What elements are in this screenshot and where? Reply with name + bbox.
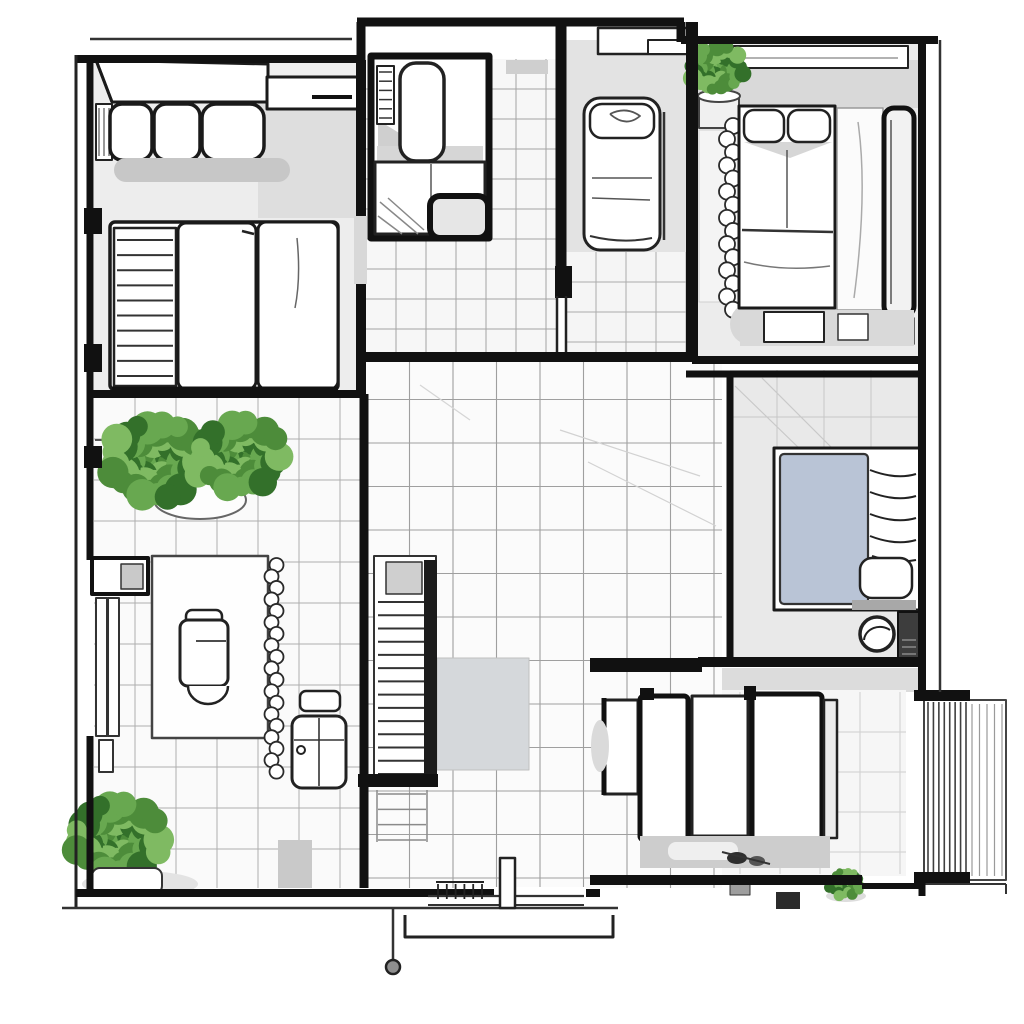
sofa-cushion-3 bbox=[202, 104, 264, 160]
staircase-base bbox=[358, 774, 438, 787]
room6-shadow-band bbox=[700, 668, 918, 692]
porch-outline bbox=[405, 915, 613, 937]
bed2-bench bbox=[430, 196, 488, 238]
gray-box bbox=[278, 840, 312, 888]
small-item bbox=[730, 884, 750, 895]
sofa-cushion-1 bbox=[110, 104, 152, 160]
floorplan-svg bbox=[0, 0, 1024, 1024]
wall-room6-left-cap bbox=[590, 658, 702, 672]
room1-shadow bbox=[258, 92, 357, 218]
room4-bench-table bbox=[764, 312, 824, 342]
sofa2-panel-right bbox=[752, 694, 822, 840]
bed2-pillow bbox=[400, 63, 444, 161]
doormat-dark bbox=[776, 892, 800, 909]
sofa2-hinge-1 bbox=[640, 688, 654, 700]
window-frame-left-a bbox=[96, 598, 107, 736]
side-table bbox=[604, 700, 638, 794]
hall-mat bbox=[437, 658, 529, 770]
door-room1 bbox=[354, 216, 367, 284]
wardrobe bbox=[884, 108, 914, 316]
window-frame-left-b bbox=[108, 598, 119, 736]
sofa-cushion-2 bbox=[154, 104, 200, 160]
sofa-shadow bbox=[114, 158, 290, 182]
bed1-runner bbox=[114, 228, 176, 386]
bed5-pillow bbox=[860, 558, 912, 598]
side-table-shadow bbox=[591, 720, 609, 772]
bed5-under-shadow bbox=[852, 600, 916, 610]
bed2-striped-pillow bbox=[377, 66, 394, 124]
console-table bbox=[267, 77, 360, 109]
room4-window bbox=[733, 46, 908, 68]
pin-head bbox=[386, 960, 400, 974]
room4-bench-box bbox=[838, 314, 868, 340]
armchair-ottoman bbox=[300, 691, 340, 711]
staircase-stringer bbox=[424, 560, 437, 786]
bed4-pillow-right bbox=[788, 110, 830, 142]
sofa-back bbox=[96, 60, 268, 102]
wall-room23-jog bbox=[555, 266, 572, 298]
threshold-room2 bbox=[506, 60, 548, 74]
bed1-duvet-left bbox=[178, 223, 256, 389]
armchair-dot bbox=[297, 746, 305, 754]
balcony-frame bbox=[924, 700, 1006, 880]
sofa2-panel-left bbox=[640, 696, 688, 840]
floor-plan-stage bbox=[0, 0, 1024, 1024]
cabinet-inner bbox=[121, 564, 143, 589]
sofa2-arm bbox=[824, 700, 837, 838]
bed5-duvet bbox=[780, 454, 868, 604]
sofa2-seat bbox=[692, 696, 748, 836]
entry-door-leaf bbox=[500, 858, 515, 908]
window-sill-left bbox=[99, 740, 113, 772]
room3-floor-lower bbox=[566, 252, 692, 353]
desk-chair-seat bbox=[180, 620, 228, 686]
staircase-landing bbox=[386, 562, 422, 594]
bed4-pillow-left bbox=[744, 110, 784, 142]
sofa2-hinge-2 bbox=[744, 686, 756, 700]
